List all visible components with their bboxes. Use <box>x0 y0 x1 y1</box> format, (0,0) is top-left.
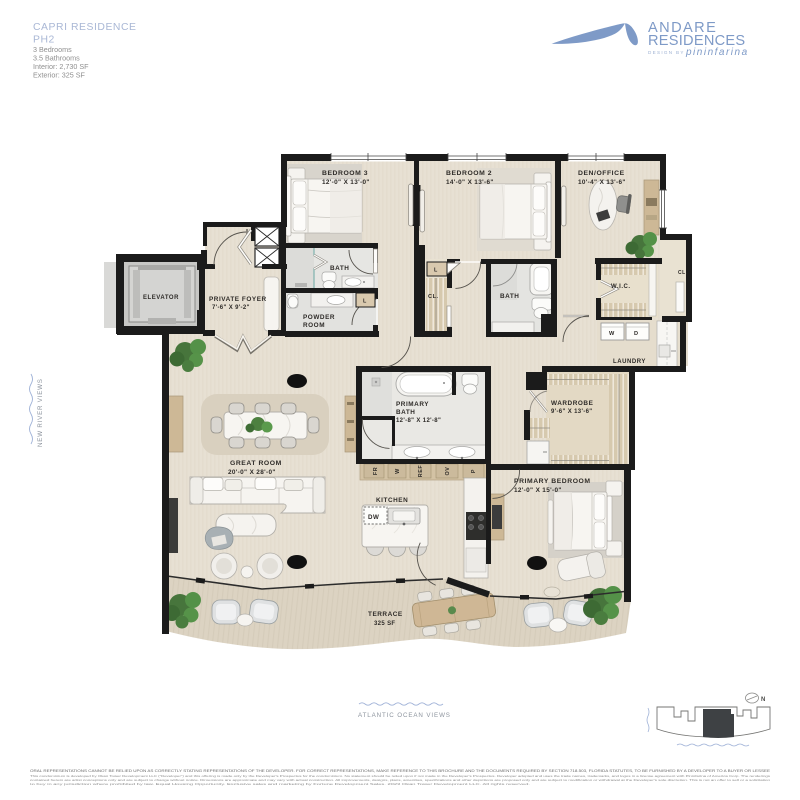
svg-text:LAUNDRY: LAUNDRY <box>613 359 646 365</box>
svg-text:to buy in any jurisdiction whe: to buy in any jurisdiction where prohibi… <box>30 782 530 786</box>
svg-text:W.I.C.: W.I.C. <box>611 284 631 290</box>
svg-text:BEDROOM 2: BEDROOM 2 <box>446 170 492 177</box>
svg-text:9'-6" X 13'-6": 9'-6" X 13'-6" <box>551 409 592 415</box>
svg-text:OV: OV <box>445 467 451 476</box>
svg-text:12'-8" X 12'-8": 12'-8" X 12'-8" <box>396 418 441 424</box>
svg-text:W: W <box>395 468 401 474</box>
svg-text:GREAT ROOM: GREAT ROOM <box>230 460 282 467</box>
svg-text:N: N <box>761 697 765 703</box>
svg-text:CL.: CL. <box>678 270 688 276</box>
svg-text:pininfarina: pininfarina <box>685 47 749 58</box>
svg-text:WARDROBE: WARDROBE <box>551 400 594 407</box>
svg-text:L: L <box>434 268 438 274</box>
svg-text:NEW RIVER VIEWS: NEW RIVER VIEWS <box>37 378 44 447</box>
svg-text:PRIMARY BEDROOM: PRIMARY BEDROOM <box>514 478 591 485</box>
svg-text:BATH: BATH <box>330 265 349 272</box>
svg-text:7'-6" X 9'-2": 7'-6" X 9'-2" <box>212 305 250 311</box>
svg-text:PRIMARY: PRIMARY <box>396 401 429 408</box>
svg-text:ROOM: ROOM <box>303 322 325 329</box>
svg-text:D: D <box>634 331 639 337</box>
svg-text:L: L <box>363 299 367 305</box>
svg-text:BATH: BATH <box>396 409 415 416</box>
svg-text:TERRACE: TERRACE <box>368 611 403 618</box>
svg-text:W: W <box>609 331 615 337</box>
svg-text:10'-4" X 13'-6": 10'-4" X 13'-6" <box>578 179 626 186</box>
svg-text:BATH: BATH <box>500 293 519 300</box>
svg-text:CAPRI RESIDENCE: CAPRI RESIDENCE <box>33 22 137 33</box>
svg-text:BEDROOM 3: BEDROOM 3 <box>322 170 368 177</box>
svg-text:20'-0" X 28'-0": 20'-0" X 28'-0" <box>228 469 276 476</box>
svg-text:Exterior: 325 SF: Exterior: 325 SF <box>33 71 86 80</box>
svg-text:325 SF: 325 SF <box>374 621 395 627</box>
svg-text:KITCHEN: KITCHEN <box>376 497 408 504</box>
svg-text:PH2: PH2 <box>33 35 55 46</box>
svg-text:P: P <box>471 469 477 473</box>
svg-text:ELEVATOR: ELEVATOR <box>143 295 179 301</box>
svg-text:POWDER: POWDER <box>303 314 335 321</box>
svg-text:REF: REF <box>418 465 424 478</box>
svg-text:ATLANTIC OCEAN VIEWS: ATLANTIC OCEAN VIEWS <box>358 712 451 719</box>
svg-text:ORAL REPRESENTATIONS CANNOT BE: ORAL REPRESENTATIONS CANNOT BE RELIED UP… <box>30 769 771 773</box>
svg-text:12'-0" X 15'-0": 12'-0" X 15'-0" <box>514 487 562 494</box>
svg-text:FR: FR <box>373 467 379 475</box>
svg-text:DEN/OFFICE: DEN/OFFICE <box>578 170 625 177</box>
svg-text:14'-0" X 13'-6": 14'-0" X 13'-6" <box>446 179 494 186</box>
svg-text:12'-0" X 13'-0": 12'-0" X 13'-0" <box>322 179 370 186</box>
svg-text:CL.: CL. <box>428 294 439 300</box>
svg-text:PRIVATE FOYER: PRIVATE FOYER <box>209 296 267 303</box>
svg-text:DW: DW <box>368 514 379 521</box>
svg-text:DESIGN BY: DESIGN BY <box>648 50 685 55</box>
